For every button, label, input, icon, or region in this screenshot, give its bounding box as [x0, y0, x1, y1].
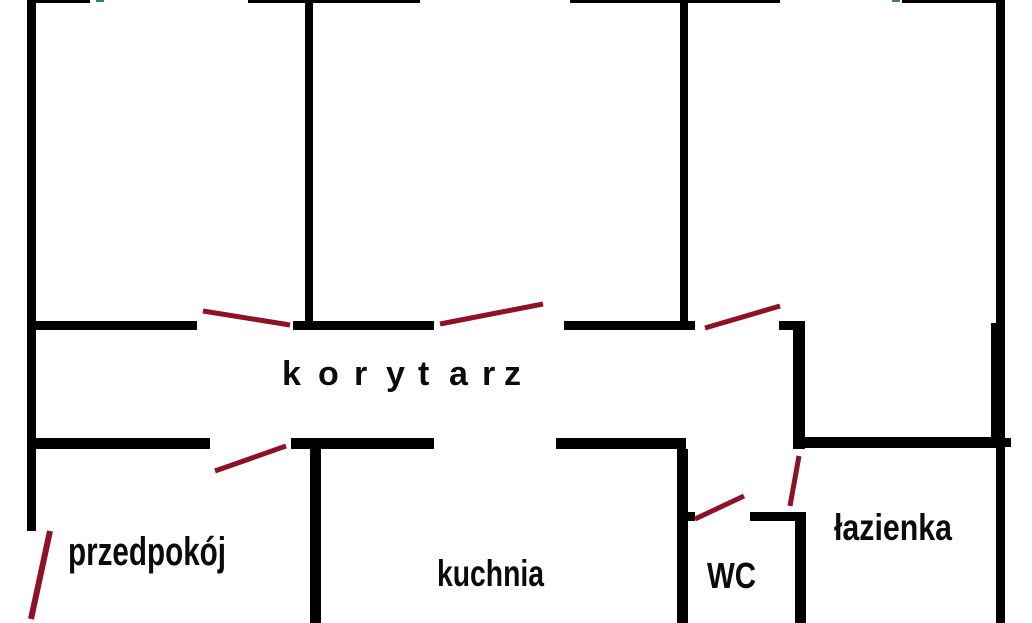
svg-text:a: a [449, 355, 469, 393]
svg-text:r: r [482, 355, 495, 393]
svg-text:r: r [354, 355, 367, 393]
svg-text:y: y [386, 355, 405, 393]
svg-text:łazienka: łazienka [834, 507, 952, 548]
svg-text:przedpokój: przedpokój [68, 530, 226, 574]
svg-text:z: z [504, 355, 521, 393]
svg-text:k: k [282, 355, 301, 393]
svg-text:kuchnia: kuchnia [437, 553, 544, 594]
svg-text:o: o [318, 355, 339, 393]
svg-text:WC: WC [707, 555, 756, 596]
svg-text:t: t [418, 355, 429, 393]
